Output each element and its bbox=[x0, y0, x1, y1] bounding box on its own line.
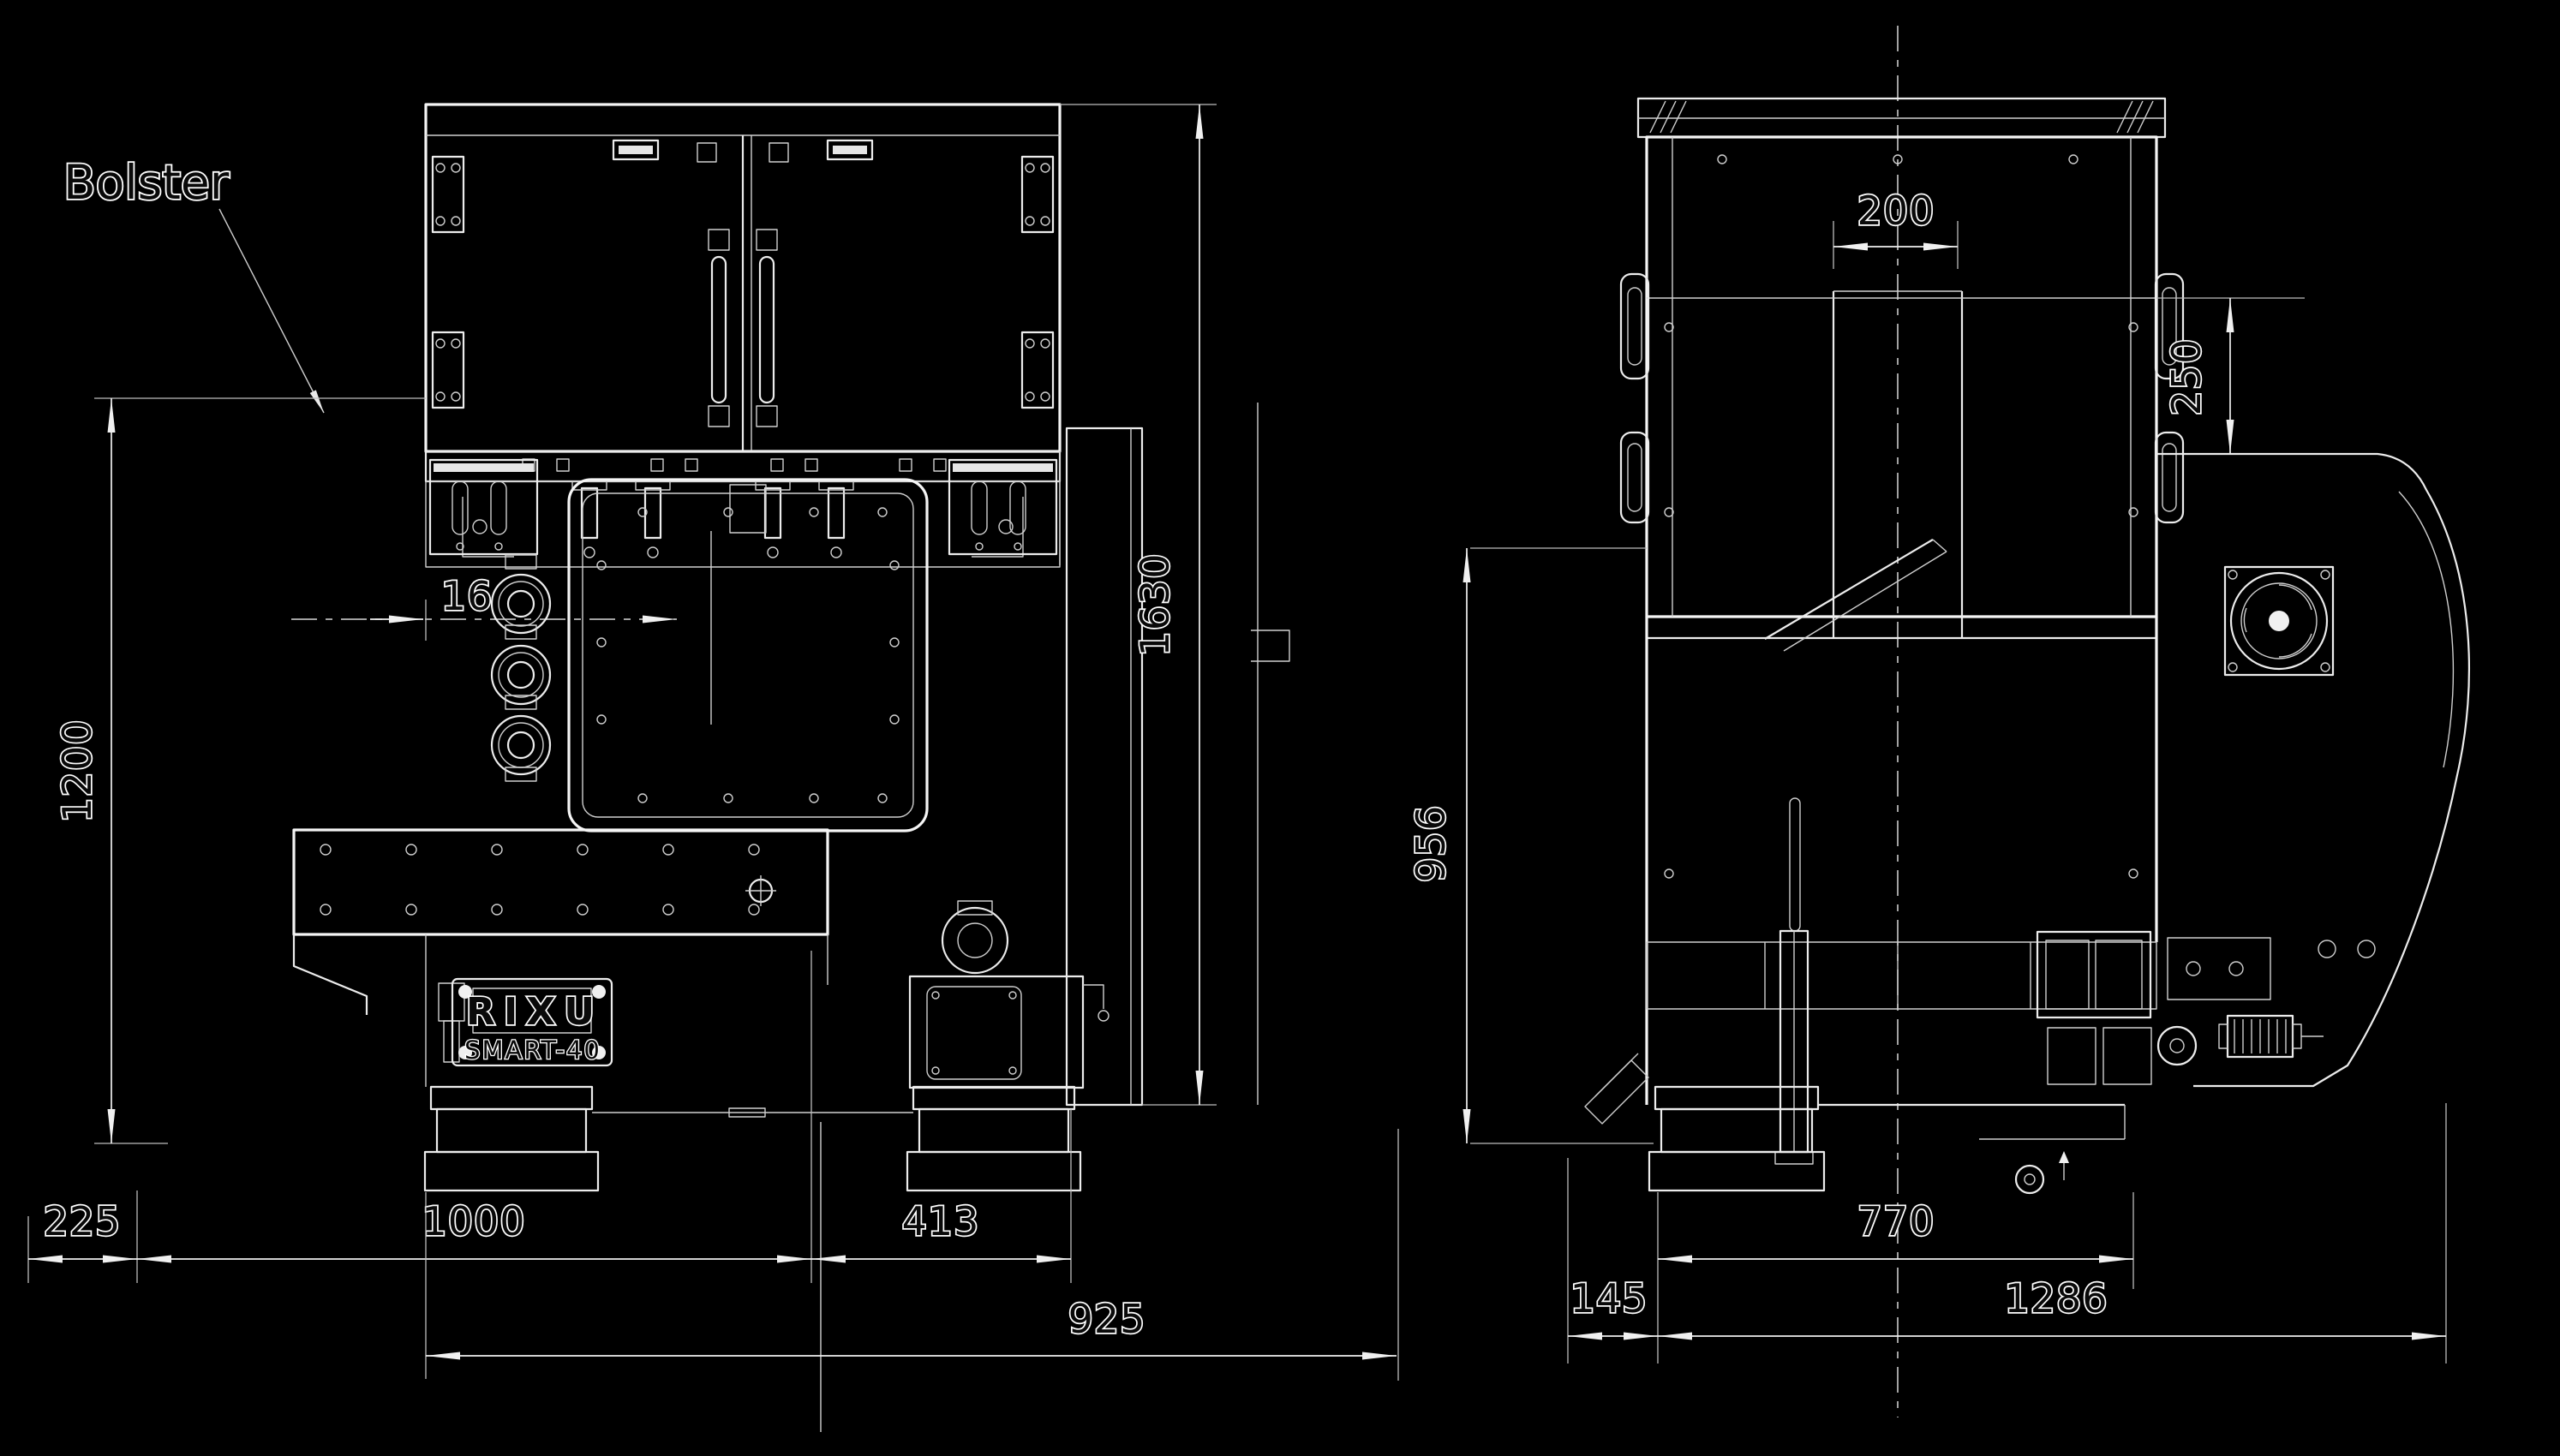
side-lower-body bbox=[1647, 540, 2156, 1105]
leveler-foot bbox=[1585, 1053, 1648, 1124]
gauge-icon bbox=[2158, 1027, 2196, 1065]
dim-text-145: 145 bbox=[1570, 1275, 1648, 1322]
rear-housing bbox=[2156, 454, 2469, 1086]
dim-text-925: 925 bbox=[1068, 1296, 1146, 1342]
dim-text-225: 225 bbox=[44, 1198, 122, 1244]
bolster-label: Bolster bbox=[63, 155, 230, 210]
dim-front-16: 16 bbox=[370, 573, 493, 641]
dim-text-1286: 1286 bbox=[2004, 1275, 2108, 1322]
dim-text-770: 770 bbox=[1857, 1198, 1935, 1244]
side-view: 200 250 956 770 145 1286 bbox=[1408, 26, 2469, 1417]
dim-side-956: 956 bbox=[1408, 548, 1654, 1143]
pump-unit bbox=[910, 901, 1109, 1088]
nameplate-brand: RIXU bbox=[466, 990, 603, 1034]
dim-text-16: 16 bbox=[441, 573, 493, 619]
enclosure-doors bbox=[426, 104, 1060, 451]
machine-drawing: 16 RIXU SMART-40 bbox=[0, 0, 2560, 1456]
clamp-cylinders bbox=[492, 555, 550, 781]
valve-cluster bbox=[2016, 932, 2375, 1193]
dim-front-1630: 1630 bbox=[1060, 104, 1217, 1105]
dim-side-bottom-row: 770 145 1286 bbox=[1568, 1103, 2446, 1364]
spring-fitting bbox=[2219, 1016, 2324, 1057]
dim-text-1200: 1200 bbox=[54, 719, 100, 822]
right-column bbox=[1060, 403, 1289, 1105]
dim-text-200: 200 bbox=[1857, 188, 1935, 234]
chute-line bbox=[1765, 540, 1933, 639]
dim-text-956: 956 bbox=[1408, 805, 1454, 883]
front-view: 16 RIXU SMART-40 bbox=[28, 104, 1398, 1432]
nameplate: RIXU SMART-40 bbox=[452, 979, 612, 1065]
side-panel-left bbox=[430, 460, 537, 554]
dim-side-250: 250 bbox=[2156, 298, 2305, 454]
dim-text-413: 413 bbox=[902, 1198, 980, 1244]
nameplate-model: SMART-40 bbox=[464, 1035, 601, 1065]
dim-side-200: 200 bbox=[1833, 188, 1958, 269]
door-handle-left bbox=[709, 230, 729, 427]
caster-icon bbox=[2016, 1166, 2043, 1193]
machine-feet-side bbox=[1649, 1087, 2125, 1190]
fan-icon bbox=[2225, 567, 2333, 675]
dim-front-1200: 1200 bbox=[54, 398, 426, 1143]
dim-text-1000: 1000 bbox=[422, 1198, 525, 1244]
door-handle-right bbox=[757, 230, 777, 427]
dim-text-1630: 1630 bbox=[1132, 552, 1178, 656]
dim-text-250: 250 bbox=[2163, 338, 2210, 416]
side-panel-right bbox=[949, 460, 1056, 554]
bolster-plate bbox=[291, 480, 927, 831]
bolster-callout: Bolster bbox=[63, 155, 324, 413]
drawing-canvas: 16 RIXU SMART-40 bbox=[0, 0, 2560, 1456]
dim-front-925: 925 bbox=[426, 1129, 1398, 1381]
